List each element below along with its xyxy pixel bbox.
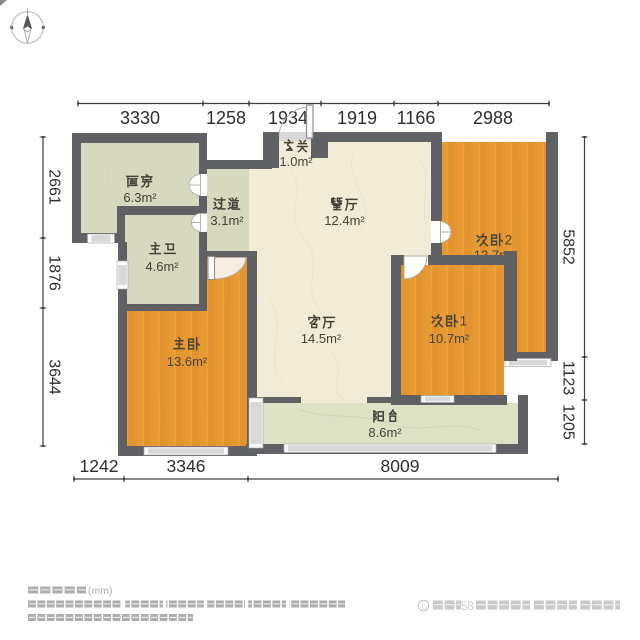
svg-text:3346: 3346 bbox=[167, 456, 206, 476]
svg-text:3.1m²: 3.1m² bbox=[210, 213, 244, 228]
svg-text:8009: 8009 bbox=[381, 456, 420, 476]
svg-text:10.7m²: 10.7m² bbox=[429, 331, 470, 346]
svg-text:1123: 1123 bbox=[560, 361, 577, 396]
svg-text:1166: 1166 bbox=[397, 108, 436, 128]
svg-text:3330: 3330 bbox=[120, 108, 160, 128]
svg-text:6.3m²: 6.3m² bbox=[123, 190, 157, 205]
svg-text:2: 2 bbox=[505, 233, 513, 248]
svg-text:2661: 2661 bbox=[46, 169, 63, 205]
svg-text:5852: 5852 bbox=[560, 229, 577, 265]
svg-text:13.6m²: 13.6m² bbox=[167, 354, 208, 369]
svg-text:1242: 1242 bbox=[80, 456, 119, 476]
svg-text:1919: 1919 bbox=[337, 108, 377, 128]
svg-text:4.6m²: 4.6m² bbox=[145, 259, 179, 274]
svg-text:1: 1 bbox=[460, 314, 468, 329]
svg-text:(mm): (mm) bbox=[88, 585, 113, 597]
svg-text:14.5m²: 14.5m² bbox=[301, 331, 342, 346]
svg-text:2988: 2988 bbox=[473, 108, 513, 128]
svg-text:58: 58 bbox=[461, 601, 474, 613]
svg-text:12.4m²: 12.4m² bbox=[324, 213, 365, 228]
svg-text:1258: 1258 bbox=[206, 108, 246, 128]
svg-text:8.6m²: 8.6m² bbox=[368, 425, 402, 440]
svg-text:1934: 1934 bbox=[268, 108, 308, 128]
svg-text:1.0m²: 1.0m² bbox=[279, 154, 313, 169]
svg-text:1205: 1205 bbox=[560, 404, 577, 440]
svg-text:3644: 3644 bbox=[46, 359, 63, 395]
svg-text:1876: 1876 bbox=[46, 255, 63, 291]
